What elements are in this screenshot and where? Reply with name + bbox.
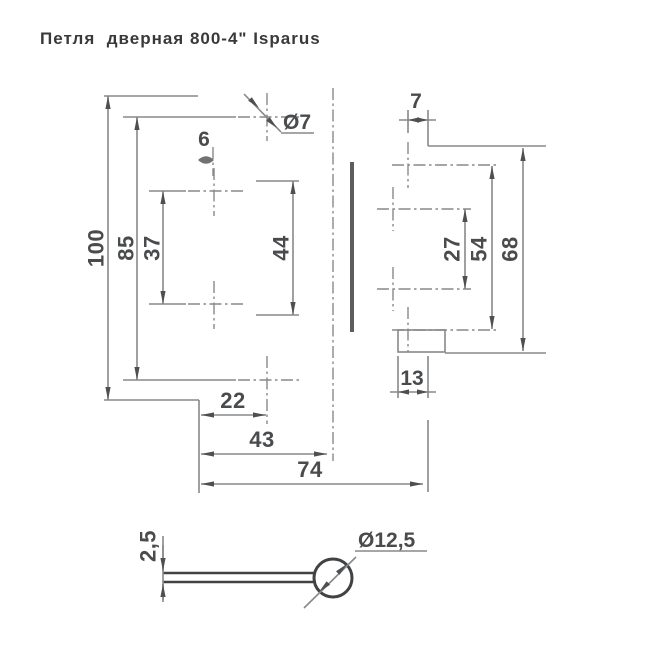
dim-7-label: 7 xyxy=(410,90,422,113)
dim-44-label: 44 xyxy=(269,235,294,261)
dim-arrow xyxy=(398,389,409,394)
hole-diameter-callout: Ø7 xyxy=(244,94,314,134)
dim-85-label: 85 xyxy=(114,235,139,260)
dim-height-100: 100 xyxy=(84,96,109,400)
dim-100-label: 100 xyxy=(84,229,109,267)
dim-2-5-label: 2,5 xyxy=(136,530,161,562)
dim-thickness-2-5: 2,5 xyxy=(136,530,164,602)
dim-edge-to-axis-43: 43 xyxy=(201,427,327,454)
dim-hole-diameter-label: Ø7 xyxy=(283,111,311,134)
leaf2-bottom-tab xyxy=(398,330,445,352)
dim-knuckle-diameter-label: Ø12,5 xyxy=(358,529,416,552)
drawing-page: Петля дверная 800-4" Isparus 100 xyxy=(0,0,650,650)
dim-overall-width-74: 74 xyxy=(201,420,428,492)
slot-shape xyxy=(198,156,214,164)
leader-arrow xyxy=(319,581,330,592)
dim-edge-to-holes-22: 22 xyxy=(201,388,266,415)
dim-74-label: 74 xyxy=(297,457,323,482)
drawing-title: Петля дверная 800-4" Isparus xyxy=(40,29,321,48)
dim-arrow xyxy=(417,117,428,122)
knuckle-diameter-callout: Ø12,5 xyxy=(304,529,427,608)
second-leaf-view: 7 27 54 68 xyxy=(377,90,546,398)
dim-37-label: 37 xyxy=(140,235,165,260)
dim-cutout-44: 44 xyxy=(256,181,299,315)
front-view: 100 85 37 44 6 xyxy=(84,88,429,493)
dim-22-label: 22 xyxy=(220,388,245,413)
dim-inner-holes-27: 27 xyxy=(440,209,466,289)
dim-68-label: 68 xyxy=(498,236,523,261)
dim-outer-holes-85: 85 xyxy=(114,117,237,380)
dim-13-label: 13 xyxy=(400,367,423,390)
dim-slot-6: 6 xyxy=(198,128,214,176)
section-view: 2,5 Ø12,5 xyxy=(136,529,428,608)
dim-edge-to-hole-7: 7 xyxy=(399,90,436,146)
dim-arrow xyxy=(417,389,428,394)
dim-inner-holes-37: 37 xyxy=(140,191,187,304)
dim-outer-holes-54: 54 xyxy=(467,166,493,329)
hinge-technical-drawing: Петля дверная 800-4" Isparus 100 xyxy=(0,0,650,650)
leader-arrow xyxy=(336,564,347,575)
dim-6-label: 6 xyxy=(198,128,210,151)
dim-43-label: 43 xyxy=(249,427,274,452)
dim-27-label: 27 xyxy=(440,236,465,261)
dim-tab-width-13: 13 xyxy=(390,356,436,398)
dim-54-label: 54 xyxy=(467,236,492,262)
